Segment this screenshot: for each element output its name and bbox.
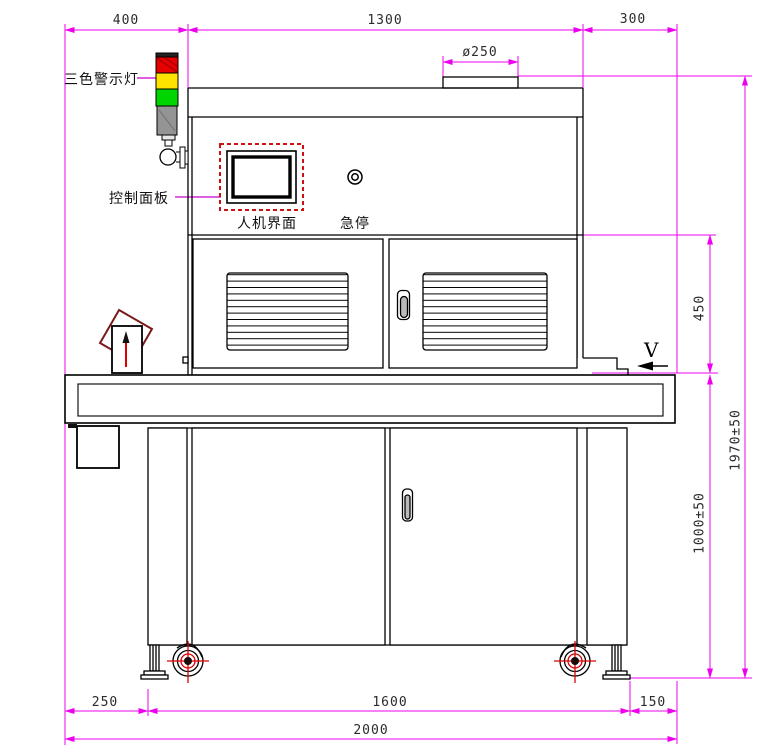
tower-light-green [156,89,178,106]
machine-geometry [65,77,675,683]
view-arrow [637,362,668,371]
upper-door-handle-grip [401,297,408,318]
dim-overall-height: 1970±50 [729,409,744,471]
control-screen [220,144,303,210]
drawing-linework [0,0,757,751]
lower-panel-right [587,428,627,645]
lower-panel-left [148,428,187,645]
dim-bottom-middle: 1600 [372,695,407,710]
leader-lines [137,78,221,197]
view-arrow-head [637,362,653,371]
tower-light-yellow [156,73,178,89]
dim-bottom-left: 250 [92,695,118,710]
tower-light-icon [156,53,188,168]
caster-wheel-left [167,641,209,683]
exhaust-duct [443,77,518,88]
dim-bottom-right: 150 [640,695,666,710]
leveling-foot-left [141,645,168,679]
label-hmi-screen: 人机界面 [237,213,297,233]
dim-upper-height: 450 [693,295,708,321]
dim-top-right: 300 [620,12,646,27]
wall-fitting [183,357,188,363]
estop-button-icon [348,170,362,184]
label-tower-light: 三色警示灯 [64,69,139,89]
louver-vent-right [423,273,547,350]
lower-door-handle-grip [405,495,410,519]
lower-door-right [390,428,577,645]
tower-light-ball-joint [160,149,176,165]
label-emergency-stop: 急停 [340,213,370,233]
dim-top-left: 400 [113,13,139,28]
label-view-marker: V [644,338,658,362]
dim-overall-width: 2000 [353,723,388,738]
louver-vent-left [227,273,348,350]
dim-duct-diameter: ø250 [462,45,497,60]
hanging-box-tab [68,424,77,428]
caster-wheel-right [554,641,596,683]
hanging-box [77,426,119,468]
dim-table-height: 1000±50 [693,492,708,554]
engineering-drawing: 400 1300 300 ø250 450 1000±50 1970±50 25… [0,0,757,751]
dim-top-middle: 1300 [367,13,402,28]
leveling-foot-right [603,645,630,679]
fixture-block [100,310,152,373]
lower-door-left [192,428,385,645]
label-control-panel: 控制面板 [109,188,169,208]
hmi-screen [233,157,290,197]
tower-light-bracket [180,147,185,168]
step-ledge [583,358,628,375]
